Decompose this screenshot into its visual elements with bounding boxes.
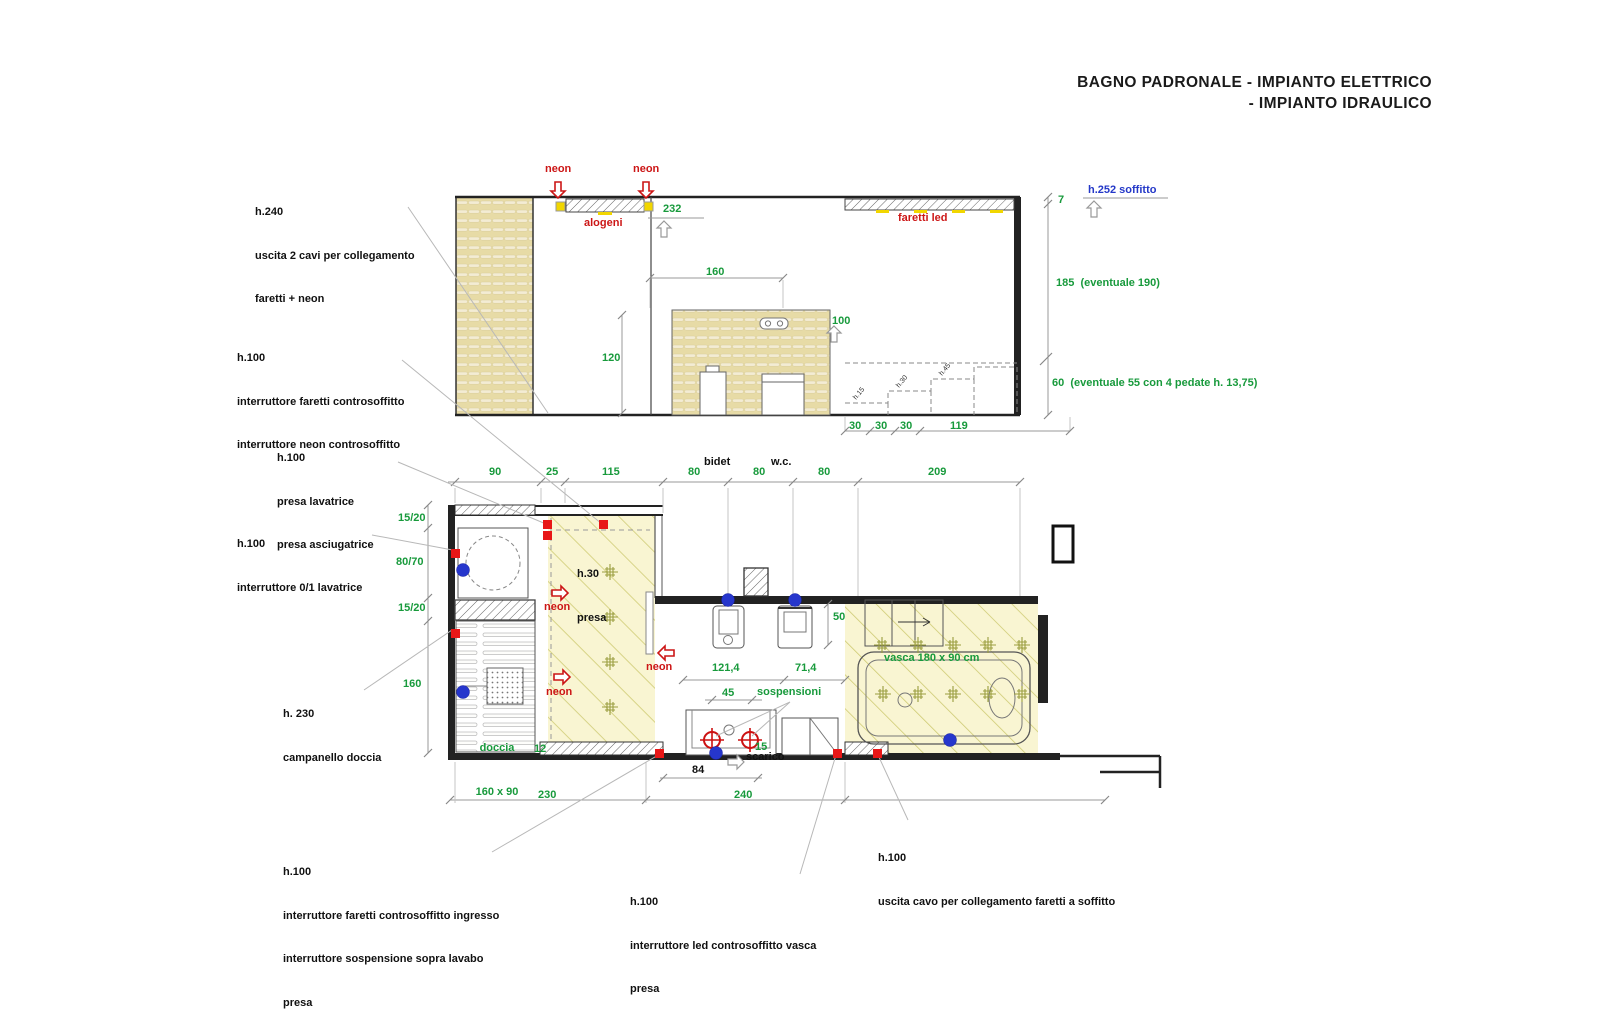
section-view: h.15 h.30 h.45 — [455, 197, 1021, 415]
washing-machine — [458, 528, 528, 598]
water-point — [789, 594, 802, 607]
section-wardrobe-panel — [456, 197, 533, 415]
section-right-wall — [1014, 197, 1021, 415]
dim-80: 80 — [818, 466, 830, 478]
top-wall-hatch — [455, 505, 535, 515]
annotation-h100-interruttore-lavatrice: h.100 interruttore 0/1 lavatrice — [237, 508, 362, 610]
neon-tube-right — [644, 202, 653, 211]
mirror-light — [760, 318, 788, 329]
dim-232: 232 — [663, 203, 681, 215]
dim-84: 84 — [692, 764, 704, 776]
dim-7: 7 — [1058, 194, 1064, 206]
wall-stub — [1053, 526, 1073, 562]
dim-12: 12 — [534, 743, 546, 755]
presa-symbol — [655, 749, 664, 758]
partition — [646, 592, 653, 654]
drawing-title: BAGNO PADRONALE - IMPIANTO ELETTRICO - I… — [1077, 72, 1432, 114]
stairs-outline — [845, 363, 1017, 415]
dim-45: 45 — [722, 687, 734, 699]
dim-25: 25 — [546, 466, 558, 478]
water-point — [457, 686, 470, 699]
shaft — [744, 568, 768, 596]
h252-soffitto-label: h.252 soffitto — [1088, 184, 1156, 196]
dim-60: 60 (eventuale 55 con 4 pedate h. 13,75) — [1052, 377, 1257, 389]
dim-230: 230 — [538, 789, 556, 801]
vasca-zone — [845, 600, 1038, 753]
dim-160-doccia: 160 — [403, 678, 421, 690]
dim-80-70: 80/70 — [396, 556, 424, 568]
dim-100: 100 — [832, 315, 850, 327]
alogeni-fixture — [566, 199, 644, 212]
presa-symbol — [833, 749, 842, 758]
faretti-led-label: faretti led — [898, 212, 948, 224]
neon-left-arrow-icon — [658, 646, 674, 660]
dim-30: 30 — [900, 420, 912, 432]
h30-presa-label: h.30 presa — [577, 538, 606, 640]
sospensioni-label: sospensioni — [757, 686, 821, 698]
wc-label: w.c. — [771, 456, 791, 468]
stair-label: h.30 — [895, 374, 909, 389]
water-point — [944, 734, 957, 747]
threshold-hatch — [540, 742, 663, 755]
dim-160: 160 — [706, 266, 724, 278]
dim-15-20: 15/20 — [398, 512, 426, 524]
wc-fixture — [778, 606, 812, 648]
dim-120: 120 — [602, 352, 620, 364]
dim-80: 80 — [688, 466, 700, 478]
presa-symbol — [543, 520, 552, 529]
dim-240: 240 — [734, 789, 752, 801]
neon-down-arrow-icon — [639, 182, 653, 198]
dim-80: 80 — [753, 466, 765, 478]
scarico-label: scarico — [746, 751, 785, 763]
dim-71-4: 71,4 — [795, 662, 816, 674]
presa-symbol — [873, 749, 882, 758]
bath-cabinet — [782, 718, 838, 755]
water-point — [722, 594, 735, 607]
drawing-canvas: h.15 h.30 h.45 — [0, 0, 1600, 1012]
neon-tube-left — [556, 202, 565, 211]
dim-30: 30 — [849, 420, 861, 432]
neon-down-arrow-icon — [551, 182, 565, 198]
stair-label: h.45 — [938, 362, 952, 377]
shower-head — [487, 668, 523, 704]
presa-symbol — [543, 531, 552, 540]
up-arrow-icon — [1087, 201, 1101, 217]
bathroom-top-wall — [655, 596, 1038, 604]
doccia-label: doccia 160 x 90 — [460, 712, 534, 814]
vanity-wall-panel — [672, 310, 830, 415]
neon-label: neon — [545, 163, 571, 175]
stair-label: h.15 — [852, 386, 866, 401]
neon-label: neon — [633, 163, 659, 175]
up-arrow-icon — [657, 221, 671, 237]
dim-15-20: 15/20 — [398, 602, 426, 614]
dim-30: 30 — [875, 420, 887, 432]
annotation-h100-interruttori-ingresso: h.100 interruttore faretti controsoffitt… — [283, 836, 499, 1012]
dim-121-4: 121,4 — [712, 662, 740, 674]
dim-50: 50 — [833, 611, 845, 623]
neon-label: neon — [646, 661, 672, 673]
annotation-h230-campanello: h. 230 campanello doccia — [283, 678, 381, 780]
bathroom-plan-drawing: h.15 h.30 h.45 — [0, 0, 1600, 1012]
exterior-steps — [1060, 756, 1160, 788]
dim-119: 119 — [950, 420, 968, 432]
section-sink-1 — [700, 372, 726, 415]
title-line-2: - IMPIANTO IDRAULICO — [1077, 93, 1432, 114]
dim-185: 185 (eventuale 190) — [1056, 277, 1160, 289]
water-point — [457, 564, 470, 577]
faretti-led-fixture — [845, 199, 1014, 210]
neon-label: neon — [546, 686, 572, 698]
dim-209: 209 — [928, 466, 946, 478]
dim-115: 115 — [602, 466, 620, 478]
annotation-h100-uscita-cavo-faretti: h.100 uscita cavo per collegamento faret… — [878, 822, 1115, 924]
scarico-point — [710, 747, 723, 760]
title-line-1: BAGNO PADRONALE - IMPIANTO ELETTRICO — [1077, 72, 1432, 93]
plan-view — [448, 505, 1160, 788]
bidet-label: bidet — [704, 456, 730, 468]
section-sink-2 — [762, 374, 804, 415]
bidet-fixture — [713, 606, 744, 648]
presa-symbol — [451, 629, 460, 638]
presa-symbol — [451, 549, 460, 558]
divider-wall — [455, 600, 535, 620]
dim-90: 90 — [489, 466, 501, 478]
right-wall — [1038, 615, 1048, 703]
annotation-h240-uscita-cavi: h.240 uscita 2 cavi per collegamento far… — [255, 176, 415, 321]
annotation-h100-interruttore-led-vasca: h.100 interruttore led controsoffitto va… — [630, 866, 816, 1011]
alogeni-label: alogeni — [584, 217, 623, 229]
neon-label: neon — [544, 601, 570, 613]
presa-symbol — [599, 520, 608, 529]
vasca-label: vasca 180 x 90 cm — [884, 652, 979, 664]
